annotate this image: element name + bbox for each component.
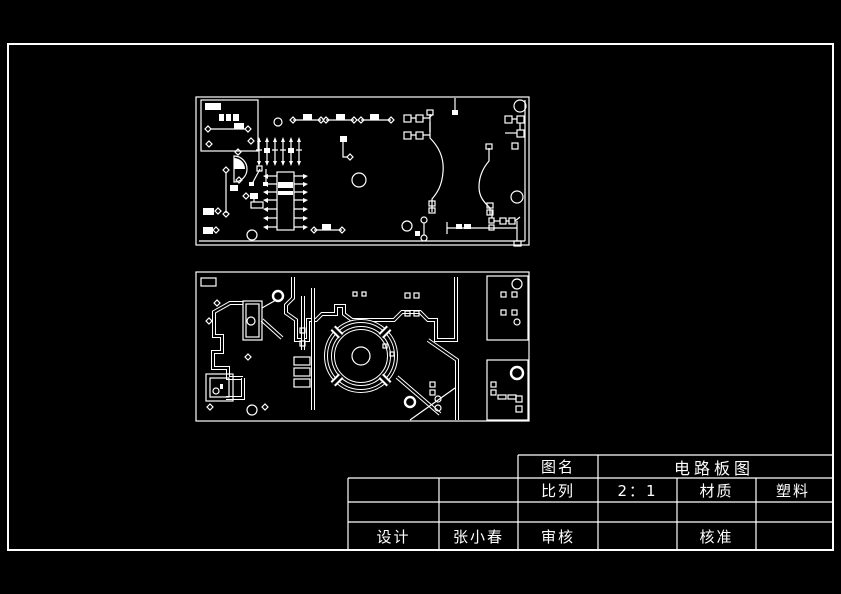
mounting-hole bbox=[247, 405, 257, 415]
scale-value: 2：1 bbox=[598, 478, 677, 502]
scale-label: 比列 bbox=[518, 478, 598, 502]
mounting-hole bbox=[247, 230, 257, 240]
drawing-name-label: 图名 bbox=[518, 455, 598, 478]
mounting-hole bbox=[511, 191, 523, 203]
designer-name: 张小春 bbox=[439, 522, 518, 550]
mounting-hole bbox=[402, 221, 412, 231]
pcb-top-view bbox=[196, 97, 529, 246]
ic-chip bbox=[277, 172, 294, 230]
cad-workspace: { "colors": { "background": "#000000", "… bbox=[0, 0, 841, 594]
board-trace bbox=[479, 148, 490, 215]
approver-label: 核准 bbox=[677, 522, 756, 550]
drawing-name-value: 电路板图 bbox=[598, 455, 830, 478]
material-label: 材质 bbox=[677, 478, 756, 502]
drawing-canvas bbox=[0, 0, 841, 594]
board-trace bbox=[430, 114, 443, 212]
center-hole bbox=[352, 347, 370, 365]
reviewer-value bbox=[598, 522, 677, 550]
mounting-hole bbox=[514, 100, 526, 112]
pcb-bottom-view bbox=[196, 272, 529, 421]
material-value: 塑料 bbox=[756, 478, 830, 502]
center-hole bbox=[352, 173, 366, 187]
reviewer-label: 审核 bbox=[518, 522, 598, 550]
designer-label: 设计 bbox=[348, 522, 439, 550]
approver-value bbox=[756, 522, 830, 550]
